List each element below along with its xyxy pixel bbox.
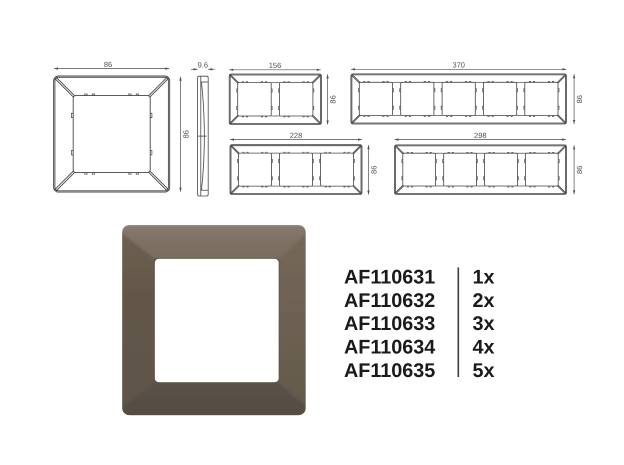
svg-text:86: 86 [182, 130, 191, 138]
svg-text:86: 86 [104, 60, 112, 69]
svg-text:86: 86 [575, 166, 584, 174]
svg-text:86: 86 [575, 95, 584, 103]
svg-text:3x: 3x [473, 313, 495, 335]
svg-text:2x: 2x [473, 290, 495, 312]
svg-text:298: 298 [474, 131, 487, 140]
svg-text:4x: 4x [473, 337, 495, 359]
svg-text:86: 86 [370, 166, 379, 174]
svg-text:5x: 5x [473, 360, 495, 382]
svg-text:AF110631: AF110631 [344, 267, 435, 289]
svg-text:370: 370 [452, 61, 465, 70]
svg-text:AF110633: AF110633 [344, 313, 435, 335]
svg-text:AF110632: AF110632 [344, 290, 435, 312]
svg-text:AF110634: AF110634 [344, 337, 435, 359]
svg-text:228: 228 [290, 131, 303, 140]
svg-text:1x: 1x [473, 267, 495, 289]
svg-text:AF110635: AF110635 [344, 360, 435, 382]
svg-text:156: 156 [269, 61, 282, 70]
svg-text:9.6: 9.6 [198, 61, 208, 70]
svg-text:86: 86 [329, 95, 338, 103]
